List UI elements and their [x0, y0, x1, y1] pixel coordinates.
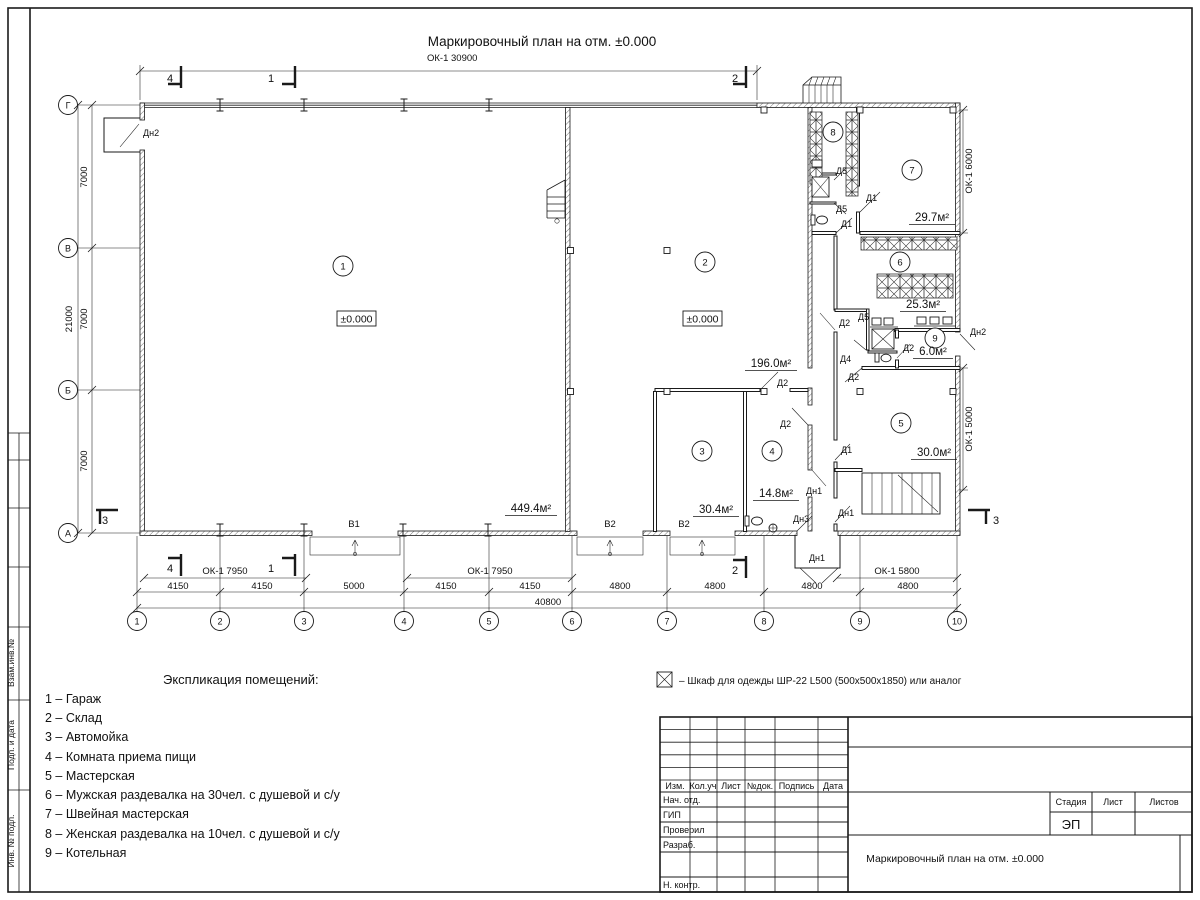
- window-dim-label: ОК-1 5800: [874, 566, 919, 577]
- top-window-dim-label: ОК-1 30900: [427, 53, 477, 64]
- window-dim-label: ОК-1 6000: [964, 148, 975, 193]
- room-legend: Экспликация помещений: 1 – Гараж 2 – Скл…: [45, 672, 341, 860]
- door-label: Дн3: [793, 514, 809, 524]
- window-dim-label: ОК-1 7950: [467, 566, 512, 577]
- note-text: – Шкаф для одежды ШР-22 L500 (500x500x18…: [679, 675, 962, 687]
- legend-item: 8 – Женская раздевалка на 10чел. с душев…: [45, 827, 341, 841]
- elevation-marks: ±0.000 ±0.000: [337, 311, 722, 326]
- dim-total-label: 21000: [64, 306, 75, 332]
- door-label: Д2: [780, 419, 791, 429]
- gate-labels: В1 В2 В2: [348, 519, 690, 530]
- drawing-sheet: Взам.инв.№ Подп. и дата Инв. № подл. Мар…: [0, 0, 1200, 900]
- legend-item: 2 – Склад: [45, 711, 103, 725]
- axis-col-label: 8: [761, 617, 766, 627]
- tb-stage-header: Листов: [1149, 797, 1178, 807]
- legend-item: 7 – Швейная мастерская: [45, 807, 189, 821]
- section-number: 4: [167, 563, 173, 575]
- tb-row-label: Разраб.: [663, 840, 695, 850]
- door-label: Д1: [866, 193, 877, 203]
- tb-row-label: Н. контр.: [663, 880, 700, 890]
- axis-row-label: Б: [65, 386, 71, 396]
- tb-header: Лист: [721, 781, 741, 791]
- dim-label: 5000: [343, 581, 364, 592]
- section-number: 3: [993, 515, 999, 527]
- tb-header: Подпись: [779, 781, 815, 791]
- dim-label: 4150: [435, 581, 456, 592]
- section-number: 2: [732, 565, 738, 577]
- axis-row-label: В: [65, 244, 71, 254]
- room-number: 7: [909, 166, 914, 177]
- axis-col-label: 2: [217, 617, 222, 627]
- axis-col-label: 7: [664, 617, 669, 627]
- dim-label: 4150: [251, 581, 272, 592]
- legend-item: 4 – Комната приема пищи: [45, 750, 196, 764]
- room-number: 5: [898, 419, 903, 430]
- elevation-label: ±0.000: [686, 314, 718, 326]
- door-label: Дн2: [143, 128, 159, 138]
- axis-col-label: 9: [857, 617, 862, 627]
- section-number: 1: [268, 563, 274, 575]
- gate-openings: [310, 537, 735, 556]
- margin-stamp-labels: Взам.инв.№ Подп. и дата Инв. № подл.: [6, 639, 16, 867]
- door-label: Д1: [841, 219, 852, 229]
- legend-item: 6 – Мужская раздевалка на 30чел. с душев…: [45, 788, 341, 802]
- section-number: 3: [102, 515, 108, 527]
- dim-label: 4150: [167, 581, 188, 592]
- dim-label: 4800: [897, 581, 918, 592]
- door-label: Д1: [841, 445, 852, 455]
- margin-label: Инв. № подл.: [6, 815, 16, 868]
- axis-col-label: 6: [569, 617, 574, 627]
- area-label: 25.3м²: [906, 299, 940, 311]
- dim-label: 4800: [609, 581, 630, 592]
- exterior-stair-icon: [803, 77, 841, 103]
- legend-item: 3 – Автомойка: [45, 730, 128, 744]
- axis-col-label: 3: [301, 617, 306, 627]
- tb-header: №док.: [747, 781, 773, 791]
- room-number: 8: [830, 128, 835, 139]
- elevation-label: ±0.000: [340, 314, 372, 326]
- section-number: 2: [732, 73, 738, 85]
- wall-ladder-icon: [547, 180, 565, 223]
- plan-title: Маркировочный план на отм. ±0.000: [428, 34, 657, 49]
- door-label: Д2: [903, 343, 914, 353]
- axis-col-label: 5: [486, 617, 491, 627]
- area-label: 14.8м²: [759, 488, 793, 500]
- door-label: Д5: [836, 204, 847, 214]
- room-number: 2: [702, 258, 707, 269]
- axis-row-label: А: [65, 529, 71, 539]
- partition-walls: [104, 108, 960, 569]
- area-label: 449.4м²: [511, 503, 552, 515]
- area-label: 30.4м²: [699, 504, 733, 516]
- dim-label: 7000: [79, 450, 90, 471]
- door-label: Д5: [836, 166, 847, 176]
- tb-header: Кол.уч: [690, 781, 717, 791]
- section-number: 4: [167, 73, 173, 85]
- door-label: Д2: [777, 378, 788, 388]
- area-label: 30.0м²: [917, 447, 951, 459]
- title-block: Изм. Кол.уч Лист №док. Подпись Дата Нач.…: [660, 717, 1192, 892]
- axis-col-label: 10: [952, 617, 962, 627]
- area-label: 6.0м²: [919, 346, 947, 358]
- axis-col-label: 4: [401, 617, 406, 627]
- room-number: 6: [897, 258, 902, 269]
- dim-label: 4150: [519, 581, 540, 592]
- tb-stage-header: Стадия: [1056, 797, 1087, 807]
- dimension-labels: 4150 4150 5000 4150 4150 4800 4800 4800 …: [64, 148, 975, 608]
- section-number: 1: [268, 73, 274, 85]
- area-label: 29.7м²: [915, 212, 949, 224]
- door-label: Дн1: [806, 486, 822, 496]
- tb-stage-header: Лист: [1103, 797, 1123, 807]
- dim-label: 4800: [801, 581, 822, 592]
- dim-label: 4800: [704, 581, 725, 592]
- tb-row-label: Проверил: [663, 825, 704, 835]
- room-area-labels: 449.4м² 196.0м² 30.4м² 14.8м² 30.0м² 25.…: [505, 212, 957, 517]
- tb-stage-value: ЭП: [1062, 817, 1081, 832]
- tb-row-label: Нач. отд.: [663, 795, 700, 805]
- room-number: 4: [769, 447, 774, 458]
- tb-header: Изм.: [665, 781, 684, 791]
- door-label: Дн1: [809, 553, 825, 563]
- gate-label: В2: [604, 519, 616, 530]
- area-label: 196.0м²: [751, 358, 792, 370]
- floor-plan-drawing: Взам.инв.№ Подп. и дата Инв. № подл. Мар…: [0, 0, 1200, 900]
- legend-item: 5 – Мастерская: [45, 769, 135, 783]
- gate-label: В1: [348, 519, 360, 530]
- legend-item: 1 – Гараж: [45, 692, 102, 706]
- wardrobe-note: – Шкаф для одежды ШР-22 L500 (500x500x18…: [657, 672, 962, 687]
- gate-label: В2: [678, 519, 690, 530]
- door-label: Дн1: [838, 508, 854, 518]
- window-dim-label: ОК-1 5000: [964, 406, 975, 451]
- tb-row-label: ГИП: [663, 810, 681, 820]
- room-number: 1: [340, 262, 345, 273]
- door-label: Д2: [839, 318, 850, 328]
- room-number: 9: [932, 334, 937, 345]
- axis-col-bubbles: 1 2 3 4 5 6 7 8 9 10: [128, 612, 967, 631]
- legend-item: 9 – Котельная: [45, 846, 126, 860]
- margin-label: Взам.инв.№: [6, 639, 16, 687]
- dim-total-label: 40800: [535, 597, 561, 608]
- tb-header: Дата: [823, 781, 843, 791]
- room-number: 3: [699, 447, 704, 458]
- door-label: Д4: [840, 354, 851, 364]
- axis-row-label: Г: [66, 101, 71, 111]
- legend-title: Экспликация помещений:: [163, 672, 319, 687]
- margin-label: Подп. и дата: [6, 720, 16, 770]
- door-labels: Дн2 Д5 Д1 Д5 Д1 Д2 Д5 Д2 Д4 Дн2 Д2 Д2 Д2…: [143, 128, 986, 563]
- dim-label: 7000: [79, 308, 90, 329]
- staircase: [862, 473, 940, 514]
- dim-label: 7000: [79, 166, 90, 187]
- door-label: Д5: [858, 312, 869, 322]
- wardrobe-lockers: [810, 112, 957, 349]
- axis-col-label: 1: [134, 617, 139, 627]
- door-label: Д2: [848, 372, 859, 382]
- tb-doc-title: Маркировочный план на отм. ±0.000: [866, 853, 1044, 865]
- window-dim-label: ОК-1 7950: [202, 566, 247, 577]
- door-label: Дн2: [970, 327, 986, 337]
